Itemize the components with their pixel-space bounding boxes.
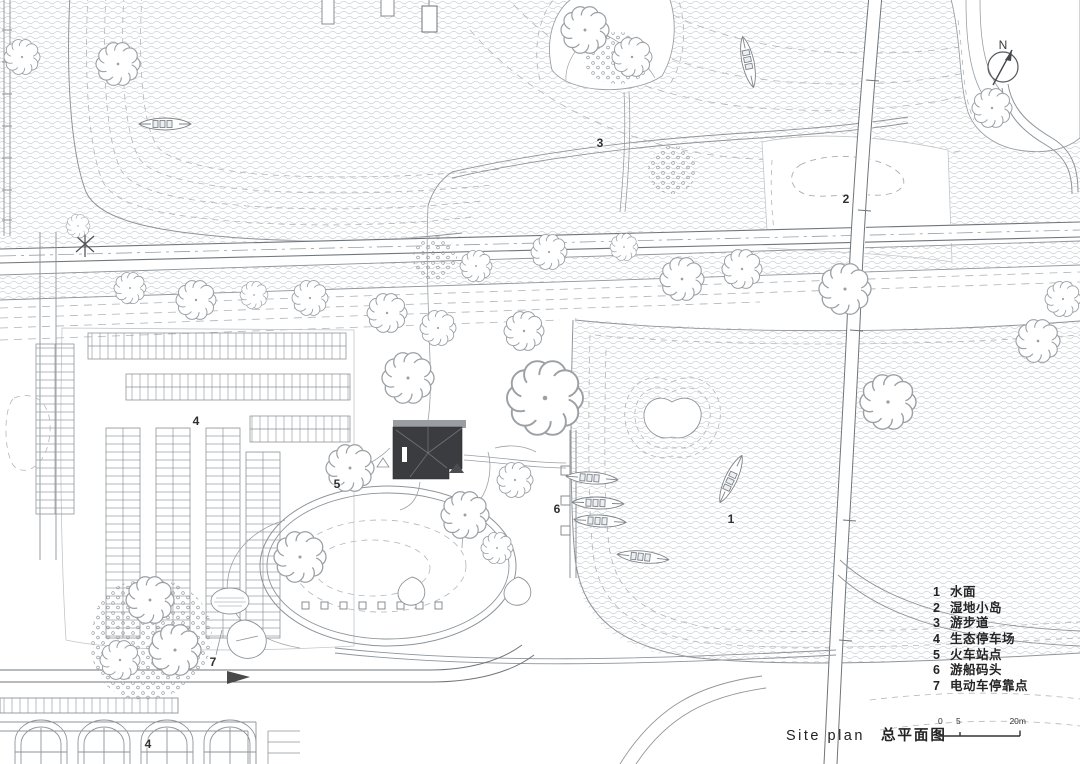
- existing-building: [0, 698, 300, 764]
- site-plan-canvas: 3 2 1 4 5 6 7 4 1 水面 2 湿地小岛 3 游步道 4 生态停车…: [0, 0, 1080, 764]
- main-lake: [571, 318, 1080, 663]
- main-building: [377, 420, 466, 479]
- white-triangle-icon: [377, 458, 389, 467]
- site-plan-drawing: [0, 0, 1080, 764]
